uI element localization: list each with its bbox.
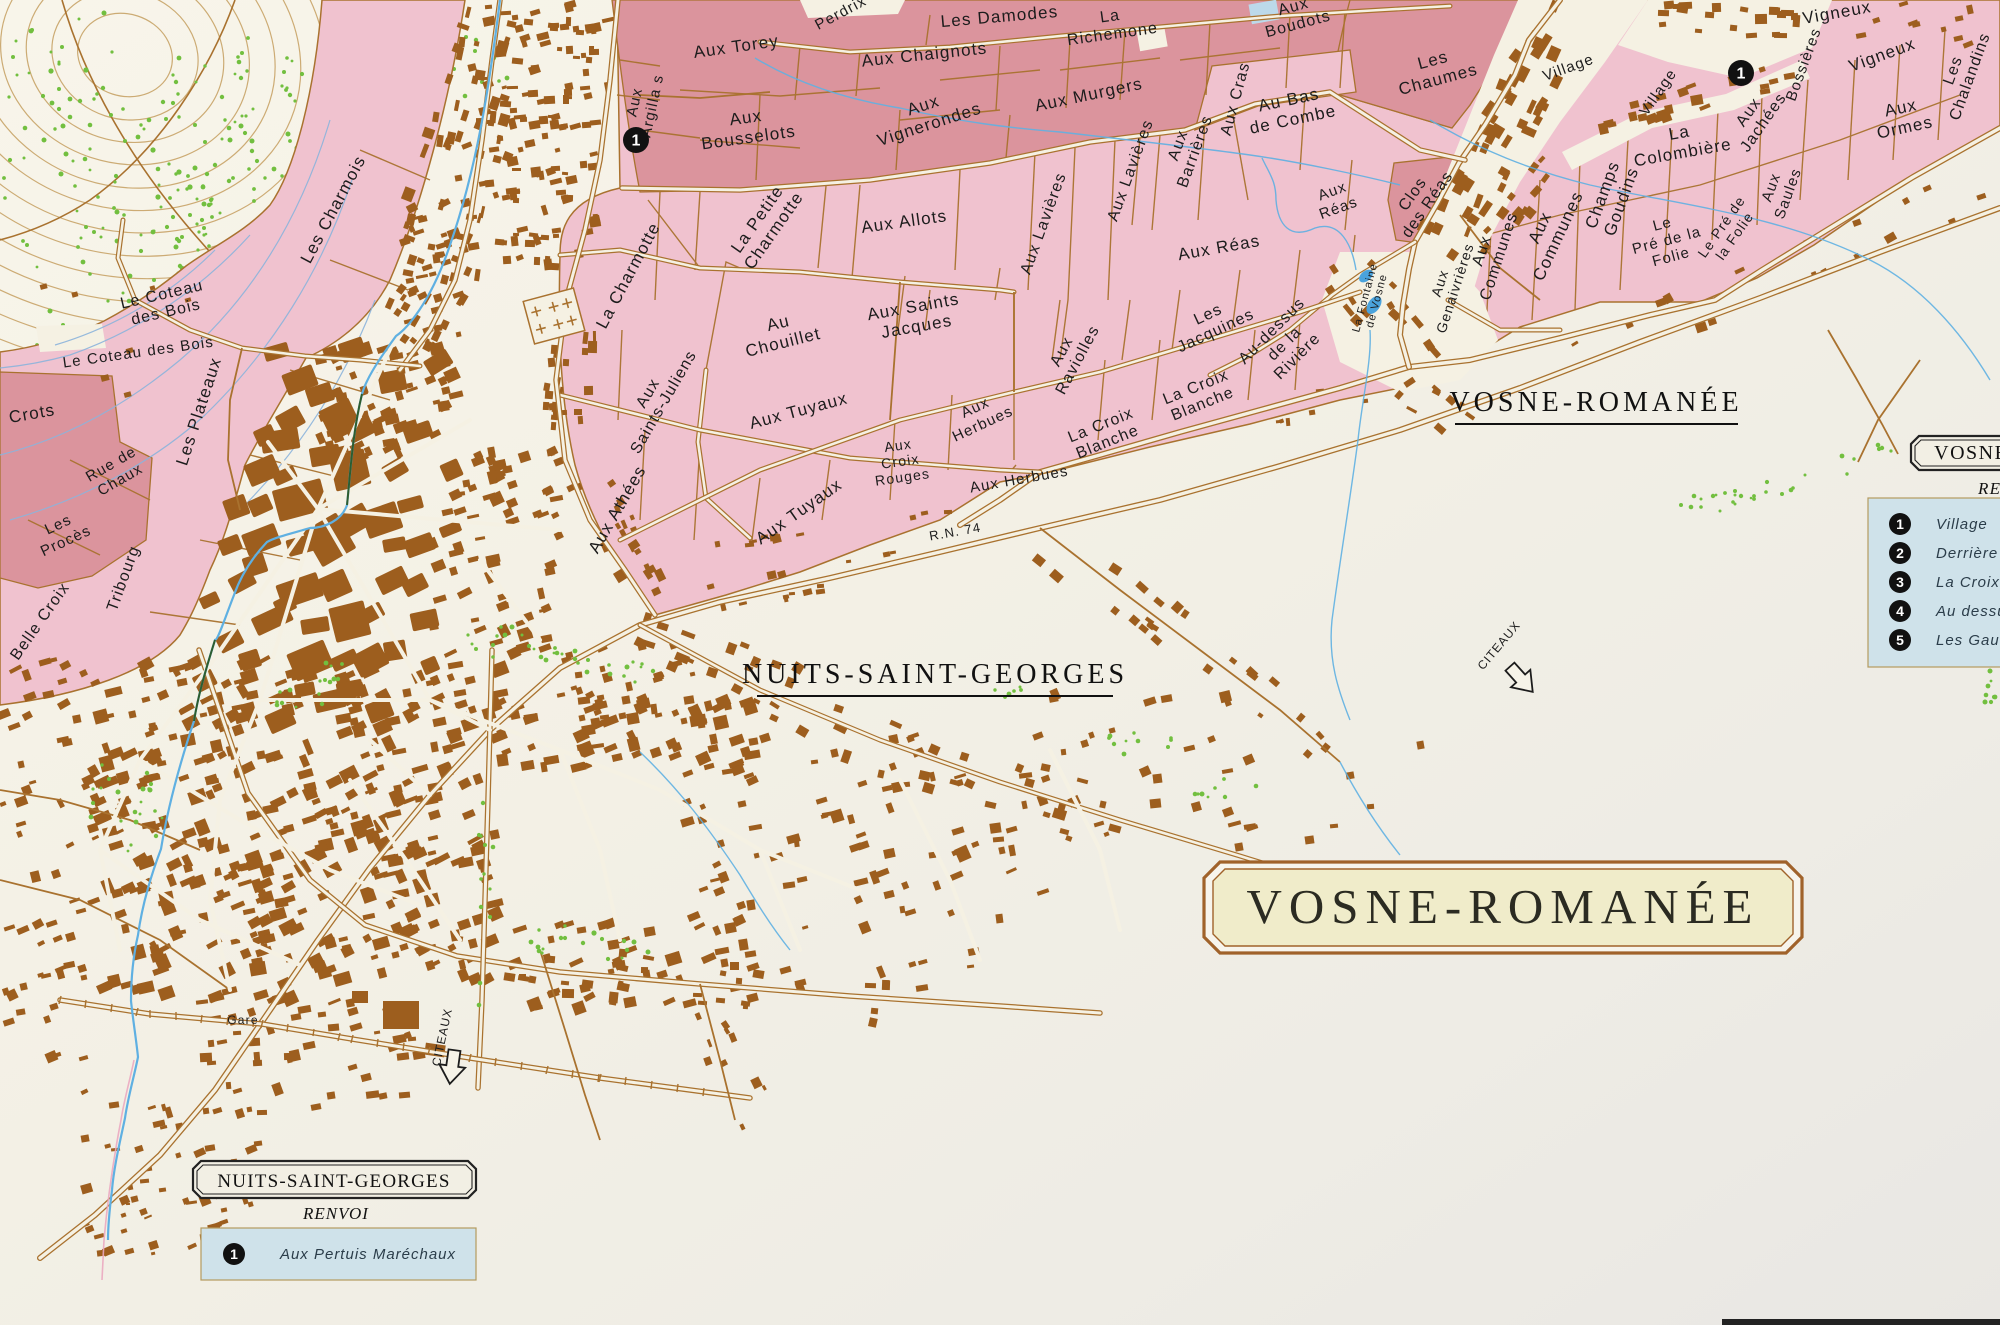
svg-text:Aux Pertuis Maréchaux: Aux Pertuis Maréchaux: [279, 1246, 456, 1263]
svg-text:La Croix Rameau: La Croix Rameau: [1936, 574, 2000, 591]
svg-text:1: 1: [1896, 516, 1904, 532]
svg-text:NUITS-SAINT-GEORGES: NUITS-SAINT-GEORGES: [217, 1171, 450, 1192]
svg-text:2: 2: [1896, 545, 1904, 561]
svg-text:4: 4: [1896, 603, 1904, 619]
svg-text:1: 1: [1737, 66, 1746, 83]
svg-text:1: 1: [632, 133, 641, 150]
svg-text:NUITS-SAINT-GEORGES: NUITS-SAINT-GEORGES: [742, 659, 1128, 690]
svg-text:1: 1: [230, 1246, 238, 1262]
svg-text:Derrière le Four: Derrière le Four: [1936, 545, 2000, 562]
svg-text:5: 5: [1896, 632, 1904, 648]
svg-text:VOSNE-ROMANÉE: VOSNE-ROMANÉE: [1247, 879, 1760, 934]
svg-text:Les Gaudichots: Les Gaudichots: [1936, 632, 2000, 649]
svg-text:3: 3: [1896, 574, 1904, 590]
svg-text:VOSNE-ROMANÉE: VOSNE-ROMANÉE: [1934, 441, 2000, 464]
svg-text:Gare: Gare: [227, 1013, 258, 1027]
svg-text:Village: Village: [1936, 516, 1988, 533]
svg-text:RENVOI: RENVOI: [1977, 479, 2000, 498]
svg-text:VOSNE-ROMANÉE: VOSNE-ROMANÉE: [1449, 387, 1742, 418]
svg-text:Au dessus de la Rivière: Au dessus de la Rivière: [1935, 603, 2000, 620]
svg-text:RENVOI: RENVOI: [302, 1204, 369, 1223]
